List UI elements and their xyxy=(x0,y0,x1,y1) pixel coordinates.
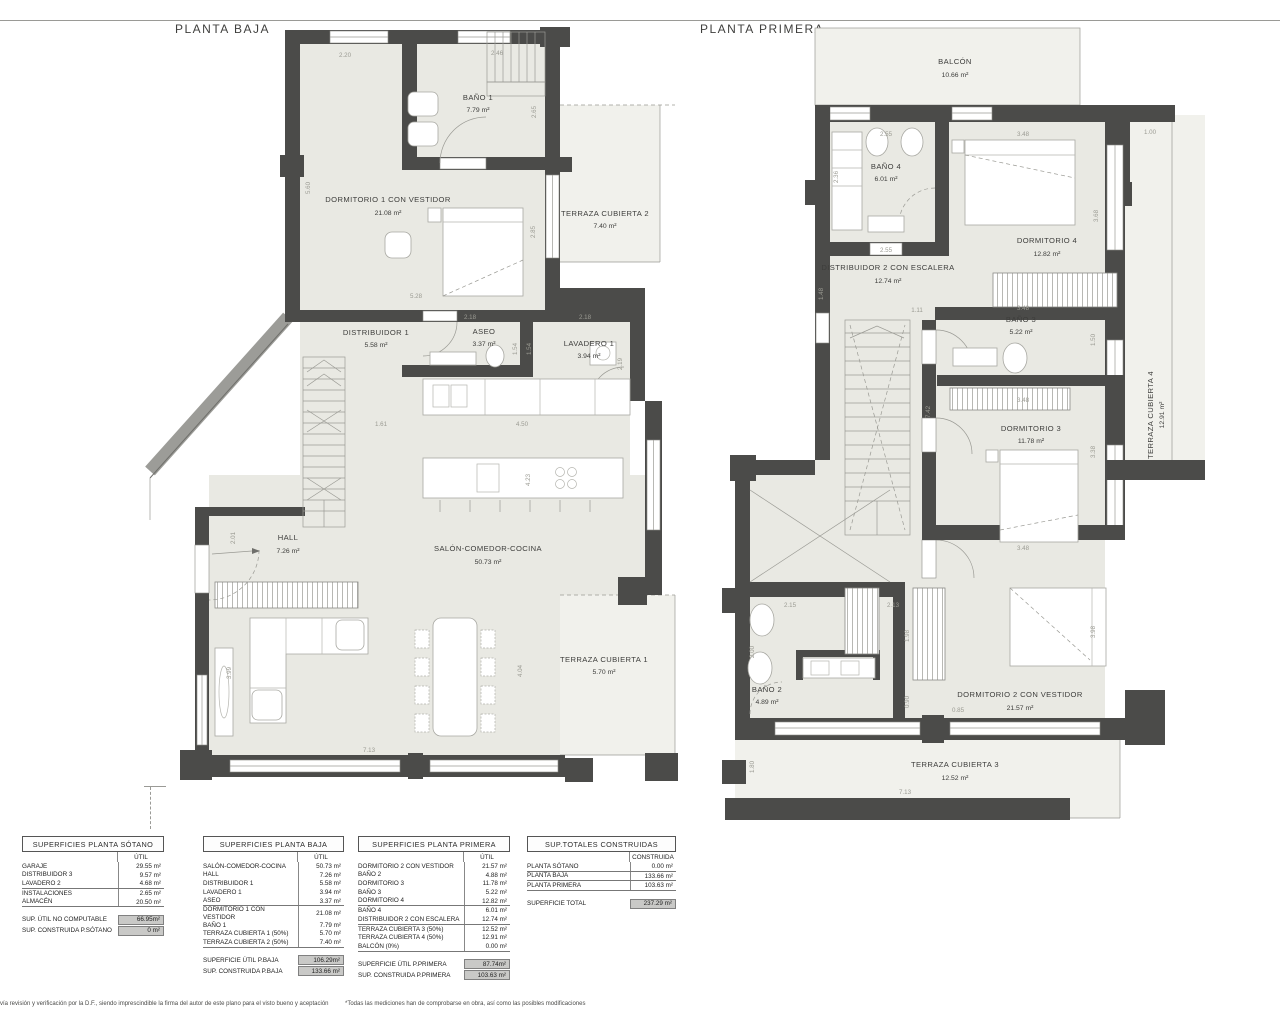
room-label-terraza1: TERRAZA CUBIERTA 1 xyxy=(560,655,648,664)
table-row: BAÑO 17.79 m² xyxy=(203,921,344,930)
row-label: BALCÓN (0%) xyxy=(358,943,464,950)
svg-text:3.99: 3.99 xyxy=(226,666,233,679)
table-total-row: SUPERFICIE ÚTIL P.BAJA106.29m² xyxy=(203,955,344,966)
table-row: BAÑO 35.22 m² xyxy=(358,888,510,897)
table-row: TERRAZA CUBIERTA 4 (50%)12.91 m² xyxy=(358,934,510,943)
row-value: 5.58 m² xyxy=(298,879,344,888)
row-label: ALMACÉN xyxy=(22,898,118,905)
total-value: 237.29 m² xyxy=(630,899,676,909)
row-value: 0.00 m² xyxy=(630,862,676,871)
svg-text:1.98: 1.98 xyxy=(904,629,911,642)
total-value: 66.95m² xyxy=(118,915,164,925)
svg-text:2.18: 2.18 xyxy=(464,314,477,321)
table-total-row: SUPERFICIE TOTAL237.29 m² xyxy=(527,898,676,909)
row-value: 12.91 m² xyxy=(464,934,510,943)
row-label: PLANTA BAJA xyxy=(527,872,630,879)
room-label-distribuidor1: DISTRIBUIDOR 1 xyxy=(343,328,409,337)
row-value: 29.55 m² xyxy=(118,862,164,871)
table-total-row: SUP. ÚTIL NO COMPUTABLE66.95m² xyxy=(22,914,164,925)
svg-text:0.85: 0.85 xyxy=(952,707,965,714)
table-total-row: SUP. CONSTRUIDA P.SÓTANO0 m² xyxy=(22,925,164,936)
leader-line xyxy=(150,787,151,829)
svg-text:7.26 m²: 7.26 m² xyxy=(276,548,300,555)
row-label: LAVADERO 2 xyxy=(22,880,118,887)
table-totals: SUPERFICIE ÚTIL P.PRIMERA87.74m²SUP. CON… xyxy=(358,959,510,981)
row-value: 2.65 m² xyxy=(118,889,164,898)
row-label: GARAJE xyxy=(22,863,118,870)
svg-text:2.18: 2.18 xyxy=(579,314,592,321)
svg-text:3.38: 3.38 xyxy=(1090,445,1097,458)
table-row: TERRAZA CUBIERTA 2 (50%)7.40 m² xyxy=(203,938,344,948)
svg-text:4.89 m²: 4.89 m² xyxy=(755,699,779,706)
row-value: 133.66 m² xyxy=(630,872,676,881)
room-label-lavadero1: LAVADERO 1 xyxy=(564,339,615,348)
row-value: 7.26 m² xyxy=(298,871,344,880)
svg-text:1.50: 1.50 xyxy=(1090,333,1097,346)
svg-text:3.98: 3.98 xyxy=(1090,625,1097,638)
column-header-label: ÚTIL xyxy=(297,852,344,862)
row-label: BAÑO 4 xyxy=(358,907,464,914)
table-title: SUP.TOTALES CONSTRUIDAS xyxy=(527,836,676,852)
table-column-header: CONSTRUIDA xyxy=(527,852,676,862)
floorplan-planta-baja: 2.20 2.46 5.60 2.65 2.85 5.28 2.18 2.18 … xyxy=(140,20,680,820)
row-value: 5.22 m² xyxy=(464,888,510,897)
table-row: DORMITORIO 1 CON VESTIDOR21.08 m² xyxy=(203,905,344,920)
svg-text:50.73 m²: 50.73 m² xyxy=(475,559,503,566)
column-header-label: ÚTIL xyxy=(463,852,510,862)
svg-text:1.61: 1.61 xyxy=(375,421,388,428)
table-column-header: ÚTIL xyxy=(22,852,164,862)
svg-text:2.13: 2.13 xyxy=(887,602,900,609)
table-row: DISTRIBUIDOR 39.57 m² xyxy=(22,871,164,880)
svg-text:2.20: 2.20 xyxy=(339,52,352,59)
row-value: 9.57 m² xyxy=(118,871,164,880)
svg-text:4.50: 4.50 xyxy=(516,421,529,428)
row-label: DORMITORIO 3 xyxy=(358,880,464,887)
total-label: SUPERFICIE ÚTIL P.BAJA xyxy=(203,957,298,964)
table-column-header: ÚTIL xyxy=(203,852,344,862)
svg-text:1.54: 1.54 xyxy=(526,342,533,355)
svg-text:10.66 m²: 10.66 m² xyxy=(942,72,970,79)
svg-text:3.48: 3.48 xyxy=(1017,305,1030,312)
row-label: DORMITORIO 2 CON VESTIDOR xyxy=(358,863,464,870)
svg-text:3.94 m²: 3.94 m² xyxy=(577,353,601,360)
row-value: 21.08 m² xyxy=(298,906,344,920)
svg-text:2.65: 2.65 xyxy=(531,105,538,118)
table-row: DISTRIBUIDOR 15.58 m² xyxy=(203,879,344,888)
table-row: PLANTA PRIMERA103.63 m² xyxy=(527,880,676,891)
svg-text:2.01: 2.01 xyxy=(230,531,237,544)
svg-text:7.13: 7.13 xyxy=(899,789,912,796)
row-label: DISTRIBUIDOR 3 xyxy=(22,871,118,878)
total-label: SUP. ÚTIL NO COMPUTABLE xyxy=(22,916,118,923)
row-value: 6.01 m² xyxy=(464,906,510,915)
room-label-terraza4: TERRAZA CUBIERTA 4 xyxy=(1146,371,1155,459)
table-row: TERRAZA CUBIERTA 3 (50%)12.52 m² xyxy=(358,924,510,934)
total-value: 106.29m² xyxy=(298,955,344,965)
svg-text:5.70 m²: 5.70 m² xyxy=(592,669,616,676)
row-label: TERRAZA CUBIERTA 2 (50%) xyxy=(203,939,298,946)
table-row: BAÑO 46.01 m² xyxy=(358,905,510,915)
svg-text:4.04: 4.04 xyxy=(517,664,524,677)
footnote-right: *Todas las mediciones han de comprobarse… xyxy=(345,1001,605,1007)
svg-text:1.11: 1.11 xyxy=(911,307,923,314)
floorplan-planta-primera: 2.55 3.48 1.00 2.36 3.68 2.55 1.48 1.11 … xyxy=(690,20,1220,820)
svg-text:3.48: 3.48 xyxy=(1017,545,1030,552)
row-label: LAVADERO 1 xyxy=(203,889,298,896)
svg-text:2.55: 2.55 xyxy=(880,131,893,138)
table-row: DORMITORIO 412.82 m² xyxy=(358,897,510,906)
total-value: 87.74m² xyxy=(464,959,510,969)
row-label: TERRAZA CUBIERTA 3 (50%) xyxy=(358,926,464,933)
row-value: 3.37 m² xyxy=(298,897,344,906)
row-label: HALL xyxy=(203,871,298,878)
table-row: PLANTA SÓTANO0.00 m² xyxy=(527,862,676,871)
row-value: 12.52 m² xyxy=(464,925,510,934)
row-label: BAÑO 2 xyxy=(358,871,464,878)
row-value: 20.50 m² xyxy=(118,898,164,907)
row-value: 3.94 m² xyxy=(298,888,344,897)
row-value: 11.78 m² xyxy=(464,879,510,888)
total-label: SUP. CONSTRUIDA P.PRIMERA xyxy=(358,972,464,979)
table-column-header: ÚTIL xyxy=(358,852,510,862)
table-row: LAVADERO 24.68 m² xyxy=(22,879,164,888)
svg-text:2.15: 2.15 xyxy=(784,602,797,609)
table-row: TERRAZA CUBIERTA 1 (50%)5.70 m² xyxy=(203,930,344,939)
row-label: DORMITORIO 4 xyxy=(358,897,464,904)
table-row: ALMACÉN20.50 m² xyxy=(22,898,164,908)
svg-text:4.23: 4.23 xyxy=(525,473,532,486)
row-value: 7.40 m² xyxy=(298,938,344,947)
svg-text:7.40 m²: 7.40 m² xyxy=(593,223,617,230)
row-label: BAÑO 3 xyxy=(358,889,464,896)
total-label: SUPERFICIE TOTAL xyxy=(527,900,630,907)
table-row: PLANTA BAJA133.66 m² xyxy=(527,871,676,881)
svg-text:0.90: 0.90 xyxy=(904,695,911,708)
row-value: 12.82 m² xyxy=(464,897,510,906)
svg-text:12.74 m²: 12.74 m² xyxy=(875,278,903,285)
table-totals: SUPERFICIE ÚTIL P.BAJA106.29m²SUP. CONST… xyxy=(203,955,344,977)
column-header-label: CONSTRUIDA xyxy=(629,852,676,862)
row-label: BAÑO 1 xyxy=(203,922,298,929)
svg-text:3.48: 3.48 xyxy=(1017,397,1030,404)
row-label: SALÓN-COMEDOR-COCINA xyxy=(203,863,298,870)
total-label: SUPERFICIE ÚTIL P.PRIMERA xyxy=(358,961,464,968)
table-total-row: SUP. CONSTRUIDA P.PRIMERA103.63 m² xyxy=(358,970,510,981)
column-header-label: ÚTIL xyxy=(117,852,164,862)
table-superficies-planta-primera: SUPERFICIES PLANTA PRIMERAÚTILDORMITORIO… xyxy=(358,836,510,981)
table-row: DORMITORIO 311.78 m² xyxy=(358,879,510,888)
table-totals: SUPERFICIE TOTAL237.29 m² xyxy=(527,898,676,909)
svg-text:21.57 m²: 21.57 m² xyxy=(1007,705,1035,712)
row-label: TERRAZA CUBIERTA 4 (50%) xyxy=(358,934,464,941)
table-superficies-planta-baja: SUPERFICIES PLANTA BAJAÚTILSALÓN-COMEDOR… xyxy=(203,836,344,977)
row-value: 12.74 m² xyxy=(464,915,510,924)
room-label-bano2: BAÑO 2 xyxy=(752,685,782,694)
svg-text:12.91 m²: 12.91 m² xyxy=(1159,401,1166,429)
room-label-bano1: BAÑO 1 xyxy=(463,93,493,102)
row-value: 103.63 m² xyxy=(630,881,676,890)
total-label: SUP. CONSTRUIDA P.BAJA xyxy=(203,968,298,975)
svg-text:5.60: 5.60 xyxy=(305,181,312,194)
row-value: 0.00 m² xyxy=(464,942,510,951)
table-row: GARAJE29.55 m² xyxy=(22,862,164,871)
row-value: 50.73 m² xyxy=(298,862,344,871)
leader-tick xyxy=(144,786,166,787)
svg-text:3.37 m²: 3.37 m² xyxy=(472,341,496,348)
row-value: 21.57 m² xyxy=(464,862,510,871)
table-title: SUPERFICIES PLANTA BAJA xyxy=(203,836,344,852)
table-row: ASEO3.37 m² xyxy=(203,897,344,906)
table-row: BAÑO 24.88 m² xyxy=(358,871,510,880)
row-value: 7.79 m² xyxy=(298,921,344,930)
total-label: SUP. CONSTRUIDA P.SÓTANO xyxy=(22,927,118,934)
svg-text:1.54: 1.54 xyxy=(512,342,519,355)
svg-text:7.79 m²: 7.79 m² xyxy=(466,107,490,114)
table-totals: SUP. ÚTIL NO COMPUTABLE66.95m²SUP. CONST… xyxy=(22,914,164,936)
table-row: DISTRIBUIDOR 2 CON ESCALERA12.74 m² xyxy=(358,915,510,924)
room-label-hall: HALL xyxy=(278,533,299,542)
row-label: DORMITORIO 1 CON VESTIDOR xyxy=(203,906,298,920)
svg-text:2.19: 2.19 xyxy=(617,357,624,370)
svg-text:5.58 m²: 5.58 m² xyxy=(364,342,388,349)
table-superficies-planta-sotano: SUPERFICIES PLANTA SÓTANOÚTILGARAJE29.55… xyxy=(22,836,164,936)
svg-text:1.48: 1.48 xyxy=(818,287,825,300)
svg-text:11.78 m²: 11.78 m² xyxy=(1018,438,1045,445)
table-row: HALL7.26 m² xyxy=(203,871,344,880)
room-label-dormitorio4: DORMITORIO 4 xyxy=(1017,236,1077,245)
svg-text:5.28: 5.28 xyxy=(410,293,423,300)
svg-text:2.85: 2.85 xyxy=(530,225,537,238)
svg-text:7.42: 7.42 xyxy=(925,405,932,418)
svg-text:3.68: 3.68 xyxy=(1093,209,1100,222)
row-label: PLANTA SÓTANO xyxy=(527,863,630,870)
room-label-aseo: ASEO xyxy=(473,327,496,336)
room-label-bano3: BAÑO 3 xyxy=(1006,315,1036,324)
table-row: DORMITORIO 2 CON VESTIDOR21.57 m² xyxy=(358,862,510,871)
row-label: ASEO xyxy=(203,897,298,904)
total-value: 103.63 m² xyxy=(464,970,510,980)
room-label-dormitorio3: DORMITORIO 3 xyxy=(1001,424,1061,433)
svg-text:1.00: 1.00 xyxy=(1144,129,1157,136)
table-title: SUPERFICIES PLANTA PRIMERA xyxy=(358,836,510,852)
table-total-row: SUP. CONSTRUIDA P.BAJA133.66 m² xyxy=(203,966,344,977)
room-label-dormitorio2: DORMITORIO 2 CON VESTIDOR xyxy=(957,690,1083,699)
svg-text:6.01 m²: 6.01 m² xyxy=(874,176,898,183)
row-label: TERRAZA CUBIERTA 1 (50%) xyxy=(203,930,298,937)
table-row: INSTALACIONES2.65 m² xyxy=(22,888,164,898)
svg-text:21.08 m²: 21.08 m² xyxy=(375,210,403,217)
room-label-dormitorio1: DORMITORIO 1 CON VESTIDOR xyxy=(325,195,451,204)
row-label: DISTRIBUIDOR 2 CON ESCALERA xyxy=(358,916,464,923)
table-title: SUPERFICIES PLANTA SÓTANO xyxy=(22,836,164,852)
table-row: BALCÓN (0%)0.00 m² xyxy=(358,942,510,952)
svg-text:7.13: 7.13 xyxy=(363,747,376,754)
svg-text:2.55: 2.55 xyxy=(880,247,893,254)
row-value: 4.68 m² xyxy=(118,879,164,888)
row-value: 4.88 m² xyxy=(464,871,510,880)
row-label: INSTALACIONES xyxy=(22,890,118,897)
table-row: LAVADERO 13.94 m² xyxy=(203,888,344,897)
svg-text:12.82 m²: 12.82 m² xyxy=(1034,251,1062,258)
row-value: 5.70 m² xyxy=(298,930,344,939)
svg-text:3.48: 3.48 xyxy=(1017,131,1030,138)
row-label: PLANTA PRIMERA xyxy=(527,882,630,889)
svg-text:12.52 m²: 12.52 m² xyxy=(942,775,970,782)
room-label-salon: SALÓN-COMEDOR-COCINA xyxy=(434,544,543,553)
svg-text:1.80: 1.80 xyxy=(749,760,756,773)
total-value: 0 m² xyxy=(118,926,164,936)
room-label-terraza2: TERRAZA CUBIERTA 2 xyxy=(561,209,649,218)
svg-text:2.46: 2.46 xyxy=(491,50,504,57)
row-label: DISTRIBUIDOR 1 xyxy=(203,880,298,887)
svg-text:2.36: 2.36 xyxy=(833,170,840,183)
table-sup-totales-construidas: SUP.TOTALES CONSTRUIDASCONSTRUIDAPLANTA … xyxy=(527,836,676,909)
footnote-left: vía revisión y verificación por la D.F.,… xyxy=(0,1001,330,1007)
room-label-distribuidor2: DISTRIBUIDOR 2 CON ESCALERA xyxy=(821,263,955,272)
total-value: 133.66 m² xyxy=(298,966,344,976)
svg-text:2.00: 2.00 xyxy=(749,645,756,658)
table-row: SALÓN-COMEDOR-COCINA50.73 m² xyxy=(203,862,344,871)
table-total-row: SUPERFICIE ÚTIL P.PRIMERA87.74m² xyxy=(358,959,510,970)
room-label-balcon: BALCÓN xyxy=(938,57,972,66)
room-label-bano4: BAÑO 4 xyxy=(871,162,901,171)
room-label-terraza3: TERRAZA CUBIERTA 3 xyxy=(911,760,999,769)
svg-text:5.22 m²: 5.22 m² xyxy=(1009,329,1033,336)
